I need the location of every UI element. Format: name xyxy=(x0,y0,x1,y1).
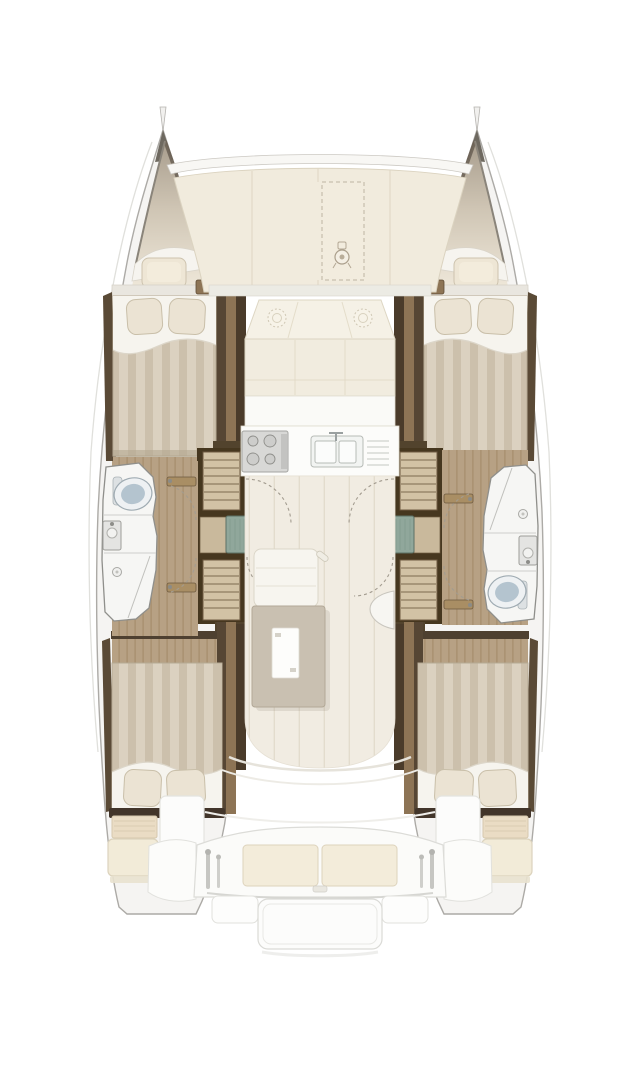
transom-wing-port xyxy=(148,840,196,902)
cockpit-floor-line xyxy=(205,812,435,823)
deck-hatch xyxy=(354,309,372,327)
head-starboard xyxy=(442,450,538,625)
saloon-bench xyxy=(254,549,329,607)
bench-unit xyxy=(254,549,318,607)
burner xyxy=(247,453,259,465)
bench-cushion xyxy=(322,845,397,886)
floor-plan-canvas xyxy=(0,0,642,1080)
saloon-front-bulkhead xyxy=(209,285,431,296)
sofa-back xyxy=(245,300,395,339)
saloon-table xyxy=(252,606,330,711)
davit-cap xyxy=(216,855,221,860)
foredeck-surface xyxy=(174,168,466,292)
transom-step xyxy=(382,896,428,923)
sheet-mark xyxy=(290,668,296,672)
forward-sofa xyxy=(245,300,395,396)
sink-basin xyxy=(315,441,336,463)
davit-cap xyxy=(205,849,211,855)
stern-shadow xyxy=(262,952,378,956)
davit-post xyxy=(206,853,210,889)
swim-platform xyxy=(258,899,382,949)
galley-stove xyxy=(242,431,288,472)
galley-back-counter xyxy=(245,396,395,426)
sofa-seat xyxy=(245,339,395,396)
davit-post xyxy=(420,858,423,888)
burner xyxy=(264,435,276,447)
sheet-mark xyxy=(275,633,281,637)
deck-hatch xyxy=(268,309,286,327)
anchor-locker xyxy=(322,182,364,280)
davit-cap xyxy=(419,855,424,860)
stove-controls xyxy=(281,434,287,469)
transom-step xyxy=(212,896,258,923)
bench-latch xyxy=(313,886,327,892)
bench-cushion xyxy=(243,845,318,886)
davit-cap xyxy=(429,849,435,855)
davit-post xyxy=(430,853,434,889)
head-port xyxy=(102,461,198,636)
aft-door-track-2 xyxy=(222,770,418,784)
transom-wing-starboard xyxy=(444,840,492,902)
davit-post xyxy=(217,858,220,888)
catamaran-floor-plan xyxy=(0,0,642,1080)
windlass-axle xyxy=(340,255,345,260)
burner xyxy=(265,454,275,464)
sink-basin xyxy=(339,441,356,463)
transom-platform xyxy=(212,896,428,956)
burner xyxy=(248,436,258,446)
foredeck xyxy=(167,155,473,293)
